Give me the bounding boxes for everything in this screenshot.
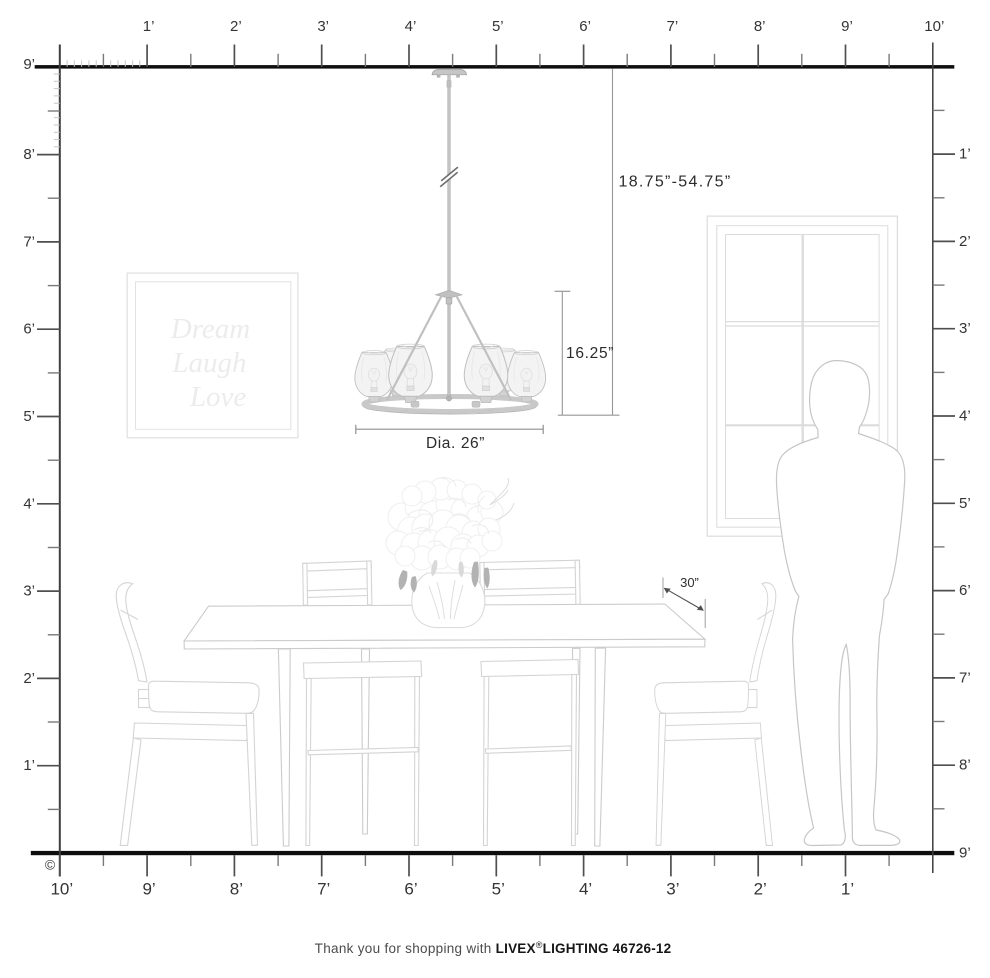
- svg-text:Dream: Dream: [170, 313, 250, 345]
- svg-text:5’: 5’: [492, 18, 504, 35]
- svg-text:1’: 1’: [841, 879, 854, 898]
- svg-text:10’: 10’: [50, 879, 73, 898]
- svg-text:16.25”: 16.25”: [566, 345, 614, 362]
- svg-text:8’: 8’: [230, 879, 243, 898]
- svg-text:1’: 1’: [143, 18, 155, 35]
- svg-text:4’: 4’: [579, 879, 592, 898]
- svg-text:Thank you for shopping with LI: Thank you for shopping with LIVEX®LIGHTI…: [315, 940, 672, 956]
- svg-text:4’: 4’: [23, 495, 35, 512]
- svg-text:6’: 6’: [404, 879, 417, 898]
- svg-text:8’: 8’: [959, 757, 971, 774]
- svg-text:4’: 4’: [959, 408, 971, 425]
- svg-text:2’: 2’: [23, 670, 35, 687]
- svg-text:3’: 3’: [959, 320, 971, 337]
- svg-text:6’: 6’: [959, 582, 971, 599]
- svg-text:5’: 5’: [492, 879, 505, 898]
- svg-text:9’: 9’: [23, 56, 35, 73]
- svg-text:3’: 3’: [23, 583, 35, 600]
- svg-text:2’: 2’: [959, 233, 971, 250]
- svg-text:10’: 10’: [924, 18, 944, 35]
- svg-text:30”: 30”: [680, 575, 699, 590]
- svg-text:Dia. 26”: Dia. 26”: [426, 435, 485, 452]
- svg-text:8’: 8’: [23, 146, 35, 163]
- svg-text:18.75”-54.75”: 18.75”-54.75”: [619, 174, 732, 191]
- svg-text:1’: 1’: [959, 146, 971, 163]
- svg-text:©: ©: [45, 857, 56, 873]
- svg-text:1’: 1’: [23, 757, 35, 774]
- svg-text:2’: 2’: [230, 18, 242, 35]
- svg-text:5’: 5’: [23, 408, 35, 425]
- svg-text:3’: 3’: [666, 879, 679, 898]
- svg-text:8’: 8’: [754, 18, 766, 35]
- svg-text:Laugh: Laugh: [171, 347, 246, 379]
- svg-text:9’: 9’: [959, 845, 971, 862]
- svg-text:9’: 9’: [142, 879, 155, 898]
- svg-text:4’: 4’: [405, 18, 417, 35]
- svg-text:7’: 7’: [317, 879, 330, 898]
- svg-text:9’: 9’: [841, 18, 853, 35]
- svg-text:7’: 7’: [667, 18, 679, 35]
- svg-text:6’: 6’: [23, 321, 35, 338]
- svg-text:3’: 3’: [317, 18, 329, 35]
- svg-text:Love: Love: [189, 381, 247, 413]
- svg-text:6’: 6’: [579, 18, 591, 35]
- svg-text:7’: 7’: [959, 669, 971, 686]
- svg-text:7’: 7’: [23, 233, 35, 250]
- svg-text:2’: 2’: [754, 879, 767, 898]
- svg-text:5’: 5’: [959, 495, 971, 512]
